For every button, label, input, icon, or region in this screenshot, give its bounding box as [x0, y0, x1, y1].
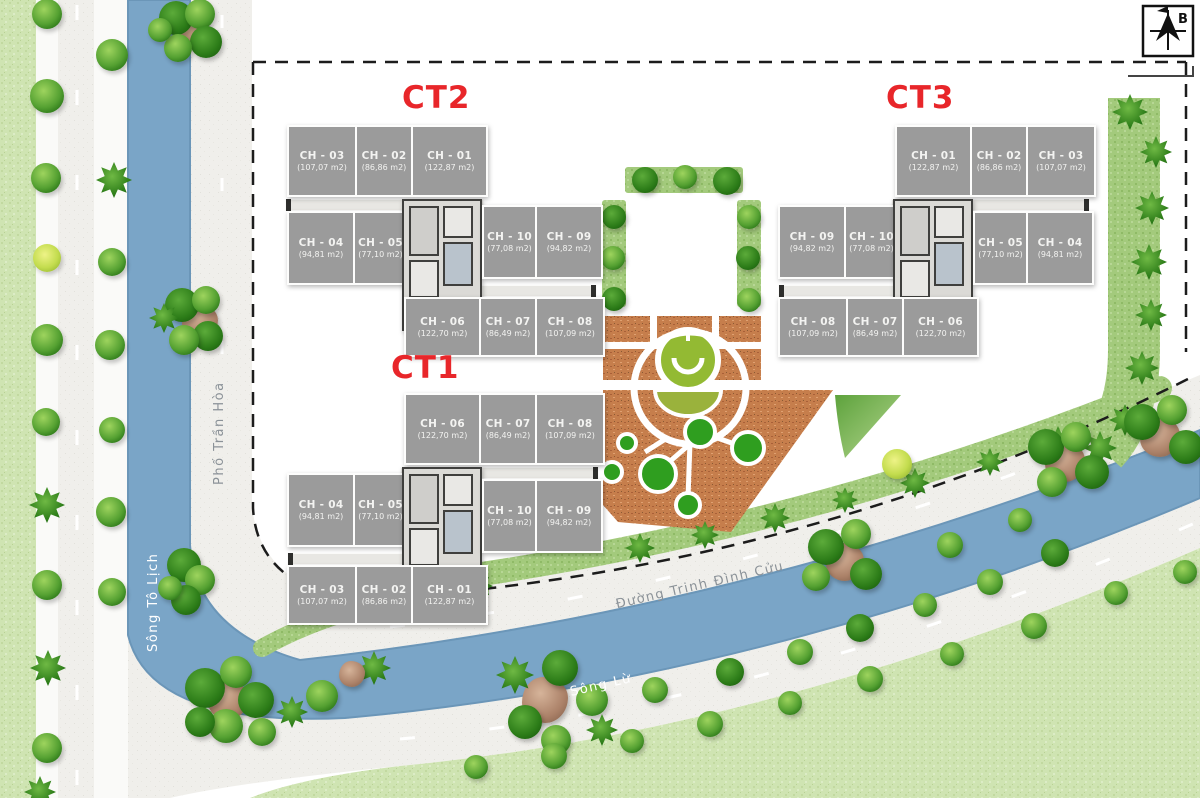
unit-cell[interactable]: CH - 04(94,81 m2): [1028, 213, 1092, 283]
tower-label-ct1[interactable]: CT1: [391, 350, 459, 386]
unit-cell[interactable]: CH - 03(107,07 m2): [289, 567, 355, 623]
unit-cell[interactable]: CH - 06(122,70 m2): [406, 299, 479, 355]
compass-icon: B: [1128, 6, 1193, 76]
unit-cell[interactable]: CH - 05(77,10 m2): [355, 475, 406, 545]
unit-cell[interactable]: CH - 02(86,86 m2): [357, 127, 411, 195]
unit-cell[interactable]: CH - 01(122,87 m2): [413, 127, 486, 195]
unit-cell[interactable]: CH - 10(77,08 m2): [846, 207, 897, 277]
unit-cell[interactable]: CH - 04(94,81 m2): [289, 213, 353, 283]
unit-cell[interactable]: CH - 02(86,86 m2): [972, 127, 1026, 195]
unit-cell[interactable]: CH - 03(107,07 m2): [289, 127, 355, 195]
unit-cell[interactable]: CH - 08(107,09 m2): [780, 299, 846, 355]
unit-cell[interactable]: CH - 01(122,87 m2): [897, 127, 970, 195]
unit-cell[interactable]: CH - 07(86,49 m2): [481, 395, 535, 463]
unit-cell[interactable]: CH - 08(107,09 m2): [537, 299, 603, 355]
tower-ct1: CH - 06(122,70 m2) CH - 07(86,49 m2) CH …: [287, 393, 597, 627]
unit-cell[interactable]: CH - 07(86,49 m2): [481, 299, 535, 355]
courtyard-hedge-north: [625, 167, 743, 193]
unit-cell[interactable]: CH - 09(94,82 m2): [537, 481, 601, 551]
sidewalk-west-inner: [94, 0, 128, 798]
unit-cell[interactable]: CH - 04(94,81 m2): [289, 475, 353, 545]
unit-cell[interactable]: CH - 10(77,08 m2): [484, 481, 535, 551]
unit-cell[interactable]: CH - 05(77,10 m2): [975, 213, 1026, 283]
tower-ct2: CH - 03(107,07 m2) CH - 02(86,86 m2) CH …: [287, 125, 597, 359]
unit-cell[interactable]: CH - 01(122,87 m2): [413, 567, 486, 623]
unit-cell[interactable]: CH - 09(94,82 m2): [537, 207, 601, 277]
unit-cell[interactable]: CH - 05(77,10 m2): [355, 213, 406, 283]
unit-cell[interactable]: CH - 06(122,70 m2): [904, 299, 977, 355]
unit-cell[interactable]: CH - 10(77,08 m2): [484, 207, 535, 277]
road-west: [58, 0, 94, 798]
green-triangle: [835, 395, 901, 458]
site-master-plan: B CT2 CH - 03(107,07 m2) CH - 02(86,86 m…: [0, 0, 1200, 798]
unit-cell[interactable]: CH - 03(107,07 m2): [1028, 127, 1094, 195]
street-label-pho-tran-hoa: Phố Trần Hòa: [212, 335, 227, 485]
tower-label-ct3[interactable]: CT3: [886, 80, 954, 116]
unit-cell[interactable]: CH - 08(107,09 m2): [537, 395, 603, 463]
tower-ct3: CH - 01(122,87 m2) CH - 02(86,86 m2) CH …: [778, 125, 1088, 359]
courtyard-hedge-east: [737, 200, 761, 307]
compass-north-label: B: [1178, 12, 1188, 27]
river-label-song-to-lich: Sông Tô Lịch: [146, 532, 161, 652]
sidewalk-west-outer: [36, 0, 58, 798]
lawn-west-strip: [0, 0, 36, 798]
unit-cell[interactable]: CH - 02(86,86 m2): [357, 567, 411, 623]
east-hedge-strip: [1102, 98, 1134, 450]
courtyard-hedge-west: [602, 200, 626, 307]
tower-label-ct2[interactable]: CT2: [402, 80, 470, 116]
unit-cell[interactable]: CH - 09(94,82 m2): [780, 207, 844, 277]
unit-cell[interactable]: CH - 07(86,49 m2): [848, 299, 902, 355]
unit-cell[interactable]: CH - 06(122,70 m2): [406, 395, 479, 463]
